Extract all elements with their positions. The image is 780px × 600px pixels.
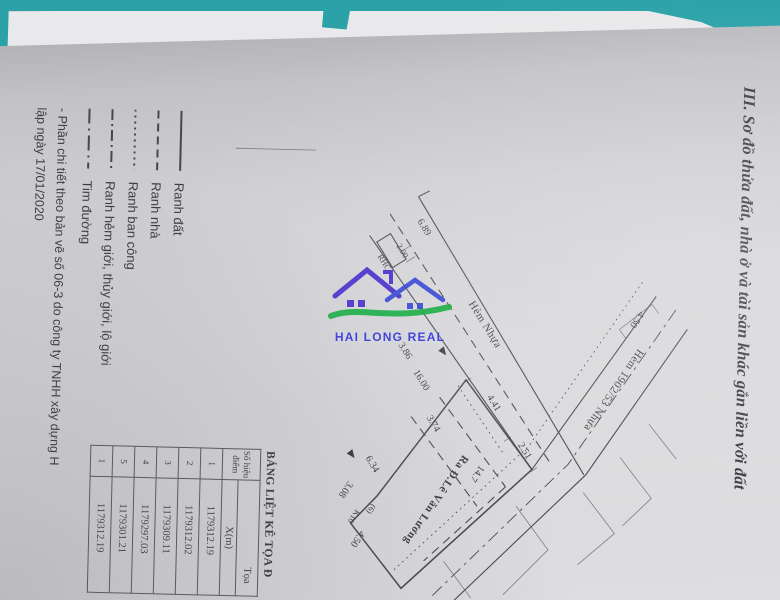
neighbor-lines-4 [503,506,549,596]
table-row: 4 1179297.03 [131,446,157,593]
point-number: 1 [200,448,223,479]
arrow-marker-1 [438,346,446,355]
col-header-point: Số hiệu điểm [222,448,261,480]
house-window [347,300,354,307]
dim-4-50-side: 4.50 [348,528,367,549]
legend-label: Ranh ban công [124,182,141,271]
neighbor-lines-3 [578,493,616,566]
legend-item-ranh-hem-gioi: Ranh hẻm giới, thủy giới, lộ giới [99,109,119,366]
point-number: 1 [90,445,113,476]
table-row: 1 1179312.19 [197,448,223,595]
legend-line-dashed [156,110,159,170]
photo-scene: III. Sơ đồ thửa đất, nhà ở và tài sản kh… [0,0,780,600]
point-number: 3 [156,447,179,478]
point-number: 4 [134,446,157,477]
watermark-text: HAI LONG REAL [325,330,455,344]
legend-label: Ranh hẻm giới, thủy giới, lộ giới [99,181,119,366]
point-number: 2 [178,447,201,478]
house-window [417,303,423,309]
arrow-marker-2 [347,449,355,458]
table-row: 5 1179301.21 [109,446,135,593]
house-window [407,303,413,309]
point-number: 5 [112,446,135,477]
x-coordinate: 1179312.19 [197,479,222,596]
col-header-group: Tọa [235,480,260,597]
watermark-logo [325,258,455,328]
x-coordinate: 1179297.03 [131,477,156,594]
house-window [358,300,365,307]
coordinate-table: BẢNG LIỆT KÊ TỌA Đ Số hiệu điểm Tọa X(m)… [87,445,277,598]
dim-2-00: 2.00 [395,242,411,260]
dim-4-50-road: 4.50 [627,309,646,330]
road-label-ra-le-van-luong: Ra Đ.Lê Văn Lương [401,453,471,547]
road-label-hem-1902: Hẻm 1902/53 Nhựa [581,347,646,434]
watermark: HAI LONG REAL [325,258,455,344]
legend: Ranh đất Ranh nhà Ranh ban công Ranh hẻm… [67,108,188,367]
x-coordinate: 1179312.02 [175,478,200,595]
table-row: 1 1179312.19 [87,445,113,592]
legend-label: Tim đường [79,180,96,244]
label-k10: K10 [346,508,363,526]
dim-6-34: 6.34 [363,454,382,475]
legend-label: Ranh đất [171,183,187,236]
legend-line-solid [179,111,182,171]
table-row: 2 1179312.02 [175,447,201,594]
table-row: 3 1179309.11 [153,447,179,594]
legend-item-tim-duong: Tim đường [76,108,96,365]
stray-frame-line [236,148,316,150]
neighbor-lines-5 [443,561,472,598]
label-p6: (6) [364,502,378,516]
neighbor-lines-2 [619,458,653,527]
col-header-x: X(m) [219,479,238,595]
dim-4-41: 4.41 [484,393,503,414]
x-coordinate: 1179312.19 [87,476,112,593]
dim-3-08: 3.08 [336,479,355,500]
legend-line-dashdot [110,109,113,169]
green-swoosh [331,307,449,316]
dim-14-7: 14.7 [467,463,486,484]
road-label-hem-nhua: Hẻm Nhựa [466,299,504,351]
legend-line-dotted [133,110,136,170]
x-coordinate: 1179301.21 [109,477,134,594]
legend-line-centerline [87,109,90,169]
legend-item-ranh-nha: Ranh nhà [145,110,165,367]
legend-item-ranh-ban-cong: Ranh ban công [122,110,142,367]
dim-16-00: 16.00 [411,368,432,393]
dim-6-89: 6.89 [415,217,434,238]
neighbor-lines-1 [648,424,677,459]
x-coordinate: 1179309.11 [153,478,178,595]
legend-label: Ranh nhà [148,182,164,239]
